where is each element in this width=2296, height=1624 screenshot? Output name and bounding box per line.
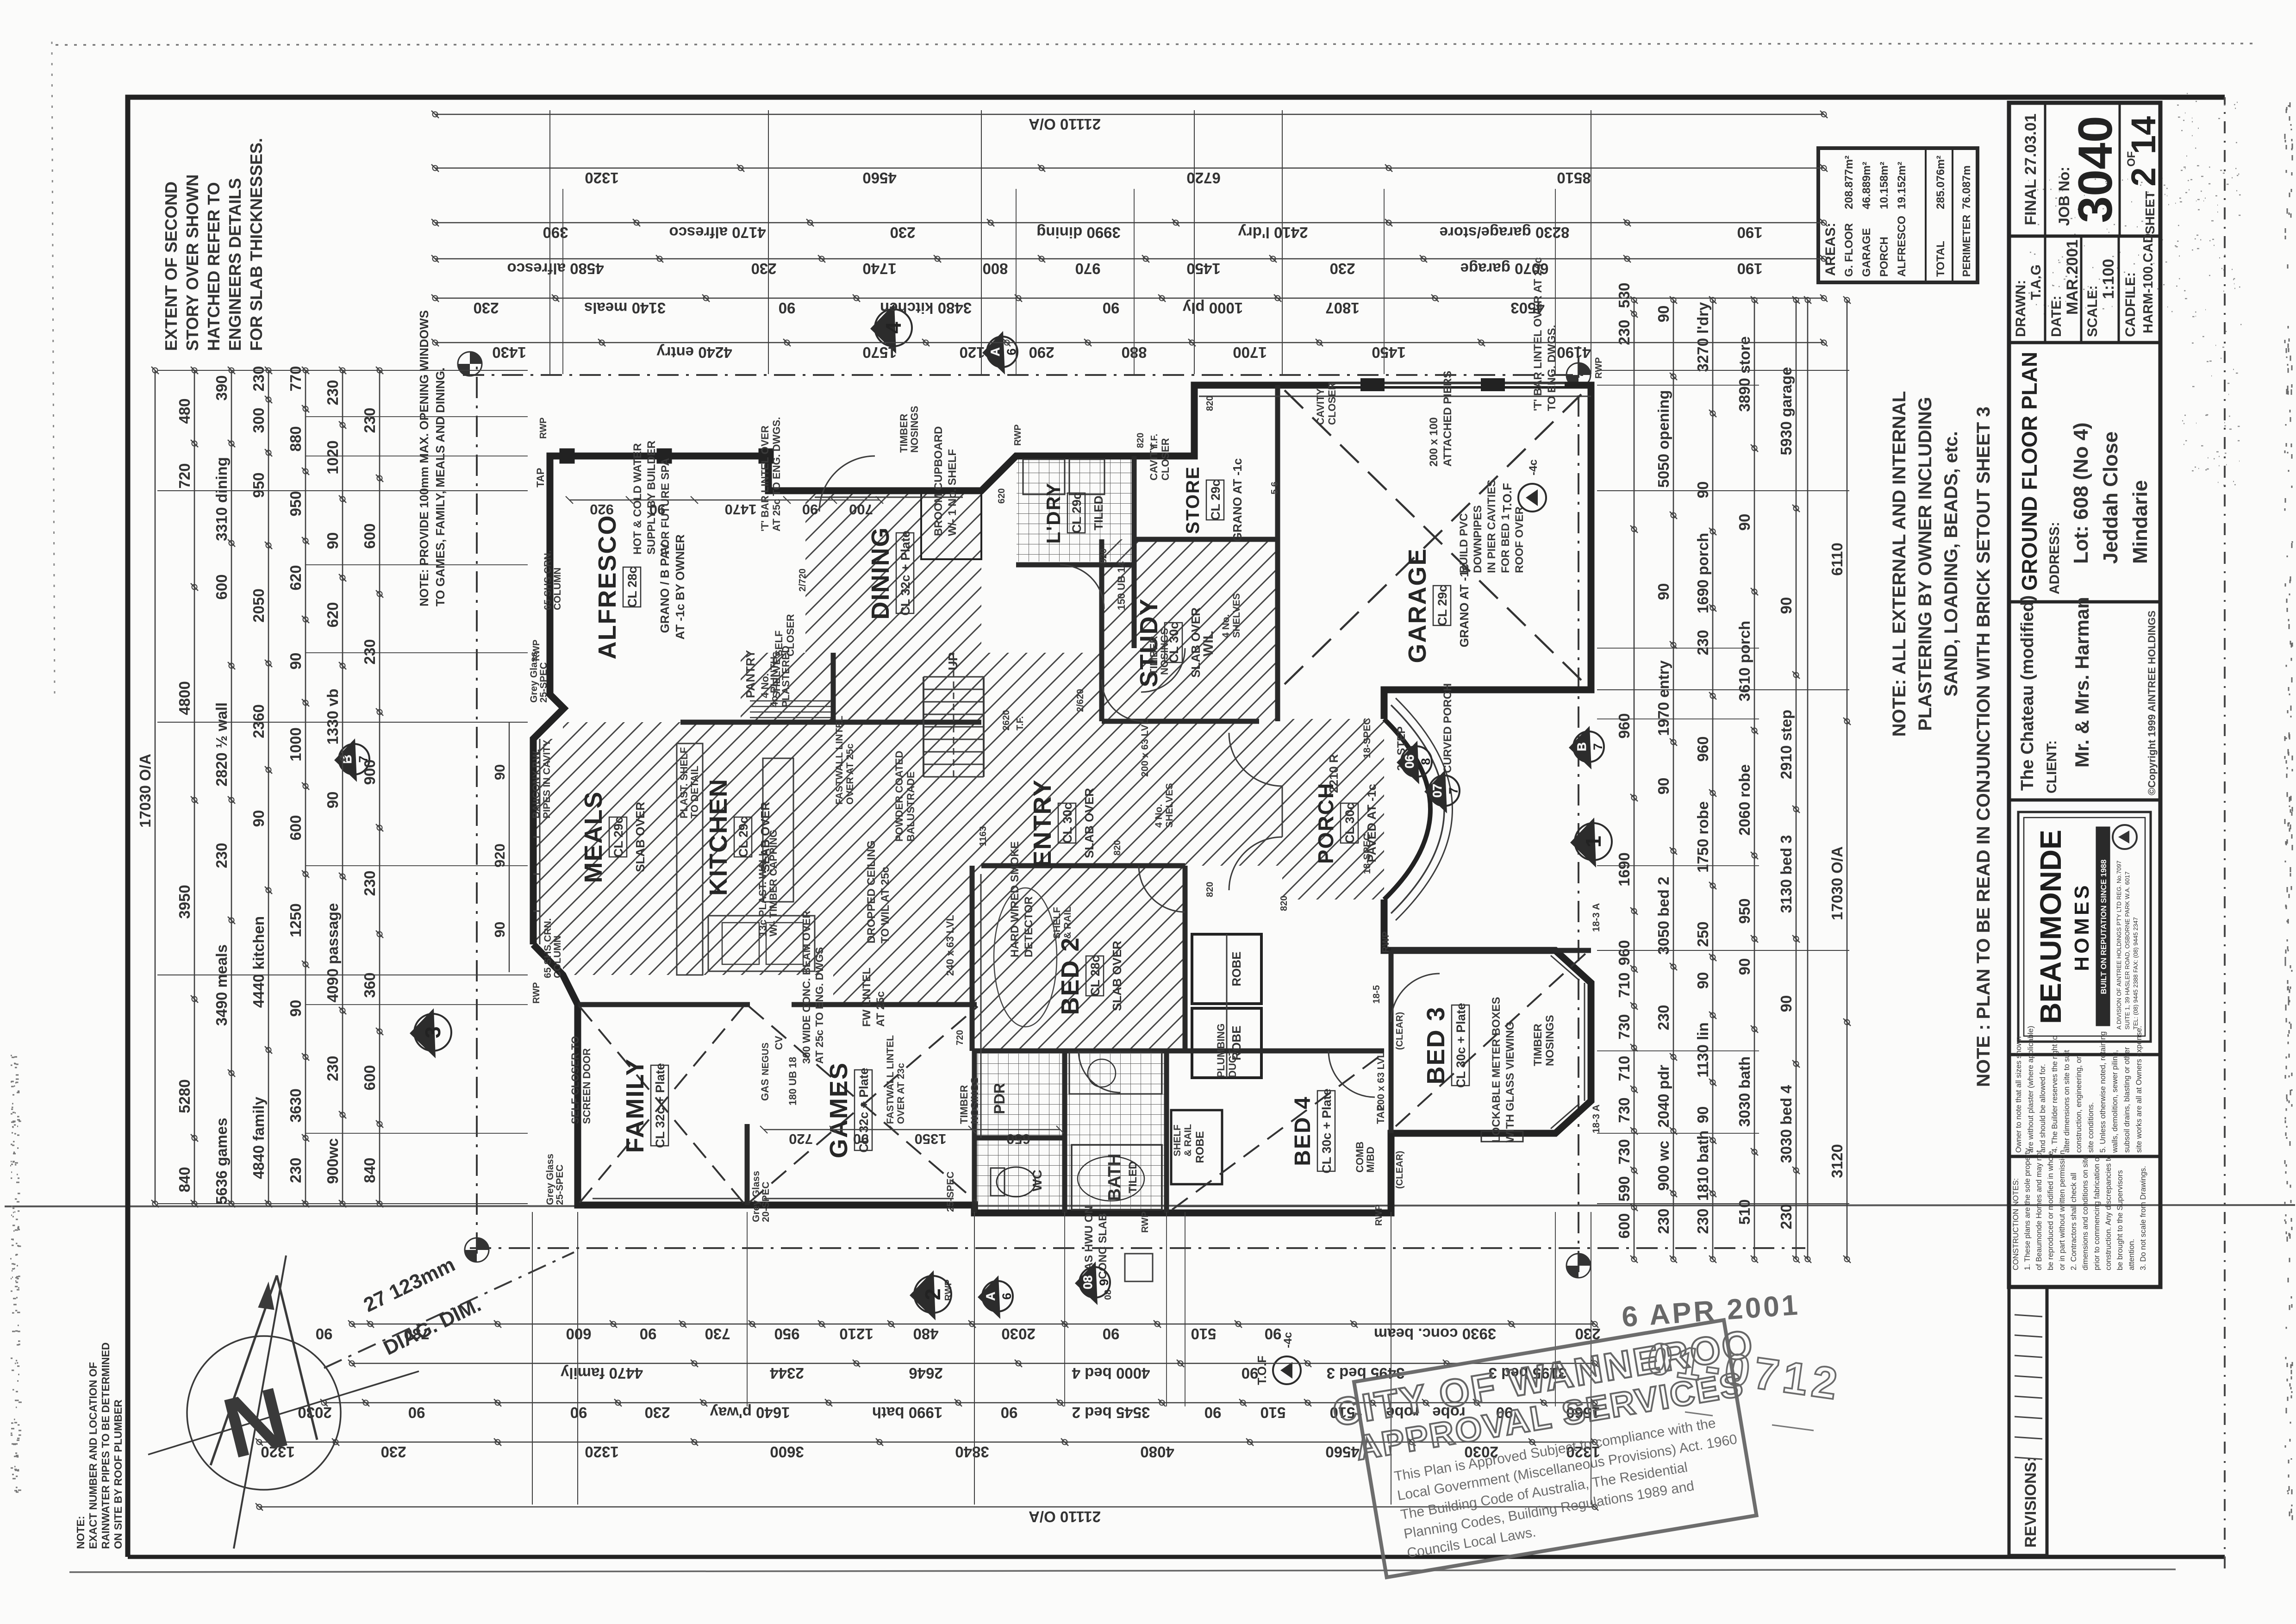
svg-text:230: 230 bbox=[1329, 260, 1355, 277]
svg-text:390: 390 bbox=[543, 224, 568, 241]
svg-text:4 No.: 4 No. bbox=[1221, 614, 1231, 638]
svg-text:2/620: 2/620 bbox=[1075, 689, 1086, 712]
svg-text:970: 970 bbox=[1075, 260, 1100, 277]
svg-text:620: 620 bbox=[324, 602, 341, 627]
svg-text:CL 29c: CL 29c bbox=[1209, 480, 1223, 520]
svg-text:90: 90 bbox=[1778, 597, 1795, 614]
svg-text:230: 230 bbox=[361, 870, 378, 896]
svg-text:NOSINGS: NOSINGS bbox=[1159, 628, 1170, 675]
svg-text:90: 90 bbox=[1694, 481, 1711, 499]
svg-text:Jeddah Close: Jeddah Close bbox=[2099, 431, 2122, 564]
svg-text:Mindarie: Mindarie bbox=[2129, 480, 2152, 564]
svg-text:700: 700 bbox=[849, 501, 873, 518]
svg-text:are without plaster (where app: are without plaster (where applicable) bbox=[2027, 1026, 2035, 1153]
svg-text:ROBE: ROBE bbox=[1229, 951, 1243, 986]
svg-text:be brought to the Supervisors: be brought to the Supervisors bbox=[2116, 1170, 2124, 1270]
svg-text:90: 90 bbox=[287, 653, 304, 670]
svg-text:TIMBER: TIMBER bbox=[898, 414, 910, 453]
svg-text:2/720: 2/720 bbox=[798, 568, 808, 592]
svg-text:3130 bed 3: 3130 bed 3 bbox=[1778, 835, 1795, 913]
svg-text:76.087m: 76.087m bbox=[1960, 165, 1973, 209]
svg-text:90: 90 bbox=[1655, 583, 1672, 600]
svg-text:CL 30c + Plate: CL 30c + Plate bbox=[1454, 1003, 1468, 1087]
svg-text:TIMBER: TIMBER bbox=[1148, 636, 1160, 675]
svg-text:200 x 63 LVL: 200 x 63 LVL bbox=[1140, 718, 1150, 777]
svg-text:8: 8 bbox=[1419, 758, 1433, 765]
svg-text:BALUSTRADE: BALUSTRADE bbox=[905, 771, 917, 842]
svg-text:5930 garage: 5930 garage bbox=[1778, 367, 1795, 456]
svg-text:230: 230 bbox=[250, 366, 267, 391]
svg-text:MEALS: MEALS bbox=[580, 791, 607, 883]
svg-text:230: 230 bbox=[890, 224, 915, 241]
svg-text:and should be allowed for.: and should be allowed for. bbox=[2039, 1064, 2047, 1153]
svg-text:CLOSER: CLOSER bbox=[1326, 382, 1338, 425]
svg-text:46.889m²: 46.889m² bbox=[1860, 162, 1873, 209]
svg-text:CL 28c: CL 28c bbox=[625, 567, 639, 607]
svg-text:18-SPEC: 18-SPEC bbox=[1362, 718, 1373, 758]
svg-text:07: 07 bbox=[1430, 784, 1444, 798]
svg-text:NOTE: PROVIDE 100mm MAX. OPENI: NOTE: PROVIDE 100mm MAX. OPENING WINDOWS bbox=[417, 310, 431, 606]
svg-text:3040: 3040 bbox=[2069, 116, 2122, 223]
svg-text:1570: 1570 bbox=[862, 344, 896, 361]
svg-text:RAINWATER PIPES TO BE DETERMIN: RAINWATER PIPES TO BE DETERMINED bbox=[100, 1343, 112, 1549]
svg-text:WC: WC bbox=[1030, 1170, 1044, 1192]
svg-text:2060 robe: 2060 robe bbox=[1736, 764, 1753, 836]
svg-text:SHEET: SHEET bbox=[2143, 191, 2157, 234]
svg-text:710: 710 bbox=[1616, 972, 1633, 998]
svg-text:2910 step: 2910 step bbox=[1778, 710, 1795, 779]
svg-text:PERIMETER: PERIMETER bbox=[1960, 214, 1972, 277]
svg-text:AT -1c BY OWNER: AT -1c BY OWNER bbox=[673, 534, 687, 640]
svg-text:1740: 1740 bbox=[862, 260, 896, 277]
svg-text:18-3 A: 18-3 A bbox=[1591, 903, 1602, 932]
svg-text:CL 29c: CL 29c bbox=[611, 817, 625, 857]
svg-text:DATE:: DATE: bbox=[2049, 296, 2064, 337]
svg-text:25-SPEC: 25-SPEC bbox=[538, 662, 549, 703]
svg-text:13c PLAST. WALL: 13c PLAST. WALL bbox=[757, 850, 768, 937]
svg-text:CONSTRUCTION NOTES:: CONSTRUCTION NOTES: bbox=[2012, 1178, 2020, 1270]
svg-text:6: 6 bbox=[1000, 1293, 1014, 1299]
svg-text:250: 250 bbox=[1694, 921, 1711, 947]
svg-text:600: 600 bbox=[287, 815, 304, 840]
svg-text:PLASTERED: PLASTERED bbox=[780, 646, 792, 707]
svg-text:'T' BAR LINTEL OVER: 'T' BAR LINTEL OVER bbox=[759, 425, 771, 531]
svg-text:18-5: 18-5 bbox=[1372, 985, 1382, 1004]
svg-text:90: 90 bbox=[1001, 1404, 1018, 1421]
svg-text:208.877m²: 208.877m² bbox=[1843, 156, 1855, 209]
svg-text:ENTRY: ENTRY bbox=[1029, 779, 1056, 867]
svg-text:SLAB OVER: SLAB OVER bbox=[1082, 788, 1096, 858]
svg-text:AT 25c TO ENG. DWGS: AT 25c TO ENG. DWGS bbox=[813, 947, 825, 1064]
svg-text:NOTE: ALL EXTERNAL AND INTERNA: NOTE: ALL EXTERNAL AND INTERNAL bbox=[1889, 391, 1909, 737]
svg-text:BROOM CUPBOARD: BROOM CUPBOARD bbox=[932, 426, 945, 536]
svg-text:6720: 6720 bbox=[1186, 169, 1220, 187]
svg-text:-4c: -4c bbox=[1527, 459, 1540, 475]
svg-text:construction, engineering, or: construction, engineering, or bbox=[2075, 1056, 2083, 1153]
svg-text:230: 230 bbox=[1694, 630, 1711, 655]
svg-text:AREAS:: AREAS: bbox=[1823, 223, 1838, 276]
svg-text:230: 230 bbox=[1655, 1005, 1672, 1030]
svg-text:GARAGE: GARAGE bbox=[1404, 548, 1431, 663]
svg-text:90: 90 bbox=[570, 1404, 587, 1421]
svg-text:1450: 1450 bbox=[1186, 260, 1220, 277]
svg-text:SCREEN DOOR: SCREEN DOOR bbox=[581, 1048, 593, 1124]
svg-text:SHELF: SHELF bbox=[1172, 1124, 1183, 1156]
svg-text:230: 230 bbox=[324, 1056, 341, 1081]
svg-text:14: 14 bbox=[2124, 116, 2163, 154]
svg-text:300 WIDE CONC. BEAM OVER: 300 WIDE CONC. BEAM OVER bbox=[800, 911, 812, 1064]
svg-text:'T' BAR LINTEL OVER AT 24c: 'T' BAR LINTEL OVER AT 24c bbox=[1532, 257, 1544, 411]
svg-text:7: 7 bbox=[1447, 787, 1460, 794]
svg-text:90: 90 bbox=[1694, 972, 1711, 989]
svg-text:BATH: BATH bbox=[1105, 1154, 1124, 1201]
svg-text:900 wc: 900 wc bbox=[1655, 1141, 1672, 1191]
svg-text:1690 porch: 1690 porch bbox=[1694, 533, 1711, 613]
svg-text:CADFILE:: CADFILE: bbox=[2123, 272, 2138, 337]
svg-text:25-SPEC: 25-SPEC bbox=[945, 1171, 956, 1212]
svg-text:4090 passage: 4090 passage bbox=[324, 903, 341, 1003]
svg-text:90: 90 bbox=[640, 1325, 657, 1343]
svg-text:©Copyright 1999 AINTREE HOLDIN: ©Copyright 1999 AINTREE HOLDINGS bbox=[2146, 611, 2158, 795]
svg-text:(CLEAR): (CLEAR) bbox=[1395, 1012, 1405, 1050]
svg-text:2620: 2620 bbox=[1001, 710, 1011, 731]
svg-text:200 x 63 LVL: 200 x 63 LVL bbox=[1376, 1052, 1386, 1110]
svg-text:Grey Glass: Grey Glass bbox=[751, 1171, 761, 1222]
svg-text:BED 4: BED 4 bbox=[1291, 1096, 1315, 1166]
svg-text:1640 p'way: 1640 p'way bbox=[710, 1404, 790, 1421]
svg-text:CL 32c + Plate: CL 32c + Plate bbox=[653, 1063, 667, 1148]
svg-text:FOR SLAB THICKNESSES.: FOR SLAB THICKNESSES. bbox=[247, 138, 266, 351]
svg-text:attention.: attention. bbox=[2128, 1239, 2136, 1270]
svg-text:TILED: TILED bbox=[1092, 495, 1105, 530]
svg-text:HOT & COLD WATER: HOT & COLD WATER bbox=[631, 443, 644, 555]
svg-text:530: 530 bbox=[1616, 282, 1633, 308]
svg-text:MAR.2001: MAR.2001 bbox=[2064, 239, 2081, 315]
svg-text:NOTE:: NOTE: bbox=[75, 1516, 87, 1549]
svg-text:HOMES: HOMES bbox=[2071, 882, 2093, 971]
svg-text:820: 820 bbox=[1279, 896, 1289, 911]
svg-text:A: A bbox=[988, 347, 1002, 356]
svg-text:DINING: DINING bbox=[867, 527, 894, 620]
svg-text:3050 bed 2: 3050 bed 2 bbox=[1655, 877, 1672, 955]
svg-text:3950: 3950 bbox=[176, 885, 193, 918]
svg-text:90: 90 bbox=[492, 922, 508, 937]
svg-text:230: 230 bbox=[287, 1157, 304, 1183]
svg-text:90: 90 bbox=[1204, 1404, 1222, 1421]
svg-text:720: 720 bbox=[955, 1030, 965, 1045]
svg-text:300: 300 bbox=[250, 407, 267, 433]
svg-text:4 No.: 4 No. bbox=[1154, 804, 1164, 828]
svg-text:CL 30c + Plate: CL 30c + Plate bbox=[1320, 1088, 1334, 1173]
svg-text:10.158m²: 10.158m² bbox=[1878, 162, 1890, 209]
svg-text:820: 820 bbox=[1205, 396, 1215, 411]
svg-text:230: 230 bbox=[361, 639, 378, 664]
svg-text:4080: 4080 bbox=[1140, 1443, 1174, 1461]
svg-text:ROOF OVER: ROOF OVER bbox=[1513, 506, 1526, 573]
svg-text:20-SPEC: 20-SPEC bbox=[761, 1181, 771, 1222]
svg-text:3610 porch: 3610 porch bbox=[1736, 621, 1753, 701]
svg-text:5. Unless otherwise noted, ret: 5. Unless otherwise noted, retaining bbox=[2099, 1031, 2107, 1153]
svg-text:600: 600 bbox=[566, 1325, 591, 1343]
svg-text:alter dimensions on site to su: alter dimensions on site to suit bbox=[2063, 1050, 2071, 1153]
svg-text:GAMES: GAMES bbox=[825, 1062, 853, 1158]
svg-text:230: 230 bbox=[381, 1443, 406, 1461]
svg-text:4170 alfresco: 4170 alfresco bbox=[669, 224, 766, 241]
svg-text:SUITE 1, 39 HASLER ROAD, OSB: SUITE 1, 39 HASLER ROAD, OSBORNE PARK W.… bbox=[2124, 872, 2131, 1030]
svg-text:600: 600 bbox=[361, 1065, 378, 1090]
svg-text:90: 90 bbox=[1103, 300, 1120, 317]
svg-text:2040 pdr: 2040 pdr bbox=[1655, 1065, 1672, 1128]
svg-text:EXACT NUMBER AND LOCATION OF: EXACT NUMBER AND LOCATION OF bbox=[87, 1362, 99, 1549]
svg-text:1020: 1020 bbox=[324, 440, 341, 474]
svg-text:PORCH: PORCH bbox=[1878, 237, 1890, 277]
svg-text:230: 230 bbox=[473, 300, 499, 317]
svg-text:2646: 2646 bbox=[909, 1365, 942, 1382]
svg-text:820: 820 bbox=[1112, 840, 1123, 856]
svg-text:FW LINTEL: FW LINTEL bbox=[861, 968, 873, 1027]
svg-text:3270 l'dry: 3270 l'dry bbox=[1694, 302, 1711, 372]
svg-text:90: 90 bbox=[1736, 514, 1753, 531]
svg-text:Owner to note that all sizes s: Owner to note that all sizes shown bbox=[2015, 1037, 2023, 1153]
svg-text:RWP: RWP bbox=[1381, 931, 1391, 953]
svg-text:POWDER COATED: POWDER COATED bbox=[893, 751, 905, 842]
svg-text:ENGINEERS DETAILS: ENGINEERS DETAILS bbox=[225, 178, 244, 351]
svg-text:subsoil drains, blasting or ot: subsoil drains, blasting or other bbox=[2123, 1047, 2131, 1153]
svg-text:& RAIL: & RAIL bbox=[1183, 1124, 1193, 1156]
svg-text:DUCT: DUCT bbox=[1227, 1049, 1238, 1078]
svg-text:PORCH: PORCH bbox=[1314, 782, 1338, 864]
svg-text:TO WIL AT 25c: TO WIL AT 25c bbox=[879, 867, 892, 943]
svg-text:NOSINGS: NOSINGS bbox=[1544, 1015, 1556, 1066]
svg-text:CL 29c: CL 29c bbox=[1435, 585, 1449, 626]
svg-text:Mr. & Mrs. Harman: Mr. & Mrs. Harman bbox=[2071, 597, 2093, 768]
svg-text:1130 lin: 1130 lin bbox=[1694, 1022, 1711, 1077]
svg-text:3890 store: 3890 store bbox=[1736, 336, 1753, 412]
svg-text:510: 510 bbox=[1736, 1199, 1753, 1224]
svg-text:950: 950 bbox=[250, 472, 267, 498]
svg-text:TO ENG. DWGS.: TO ENG. DWGS. bbox=[1546, 325, 1558, 411]
svg-text:920: 920 bbox=[492, 843, 508, 868]
svg-text:190: 190 bbox=[1737, 224, 1762, 241]
svg-text:TIMBER: TIMBER bbox=[958, 1085, 970, 1124]
svg-text:M/BD: M/BD bbox=[1365, 1147, 1376, 1173]
svg-text:18-SPEC: 18-SPEC bbox=[1362, 833, 1373, 874]
svg-text:SELF CLOSER TO: SELF CLOSER TO bbox=[569, 1036, 581, 1124]
svg-text:820: 820 bbox=[1136, 433, 1146, 448]
svg-text:5636 games: 5636 games bbox=[213, 1118, 230, 1204]
svg-text:3630: 3630 bbox=[287, 1088, 304, 1122]
svg-text:CL 32c + Plate: CL 32c + Plate bbox=[898, 531, 912, 615]
svg-text:9: 9 bbox=[1097, 1279, 1111, 1286]
svg-text:510: 510 bbox=[1191, 1325, 1216, 1343]
svg-text:4000 bed 4: 4000 bed 4 bbox=[1072, 1365, 1150, 1382]
svg-text:2030: 2030 bbox=[1001, 1325, 1035, 1343]
svg-text:720: 720 bbox=[176, 463, 193, 488]
svg-text:1320: 1320 bbox=[585, 1443, 618, 1461]
svg-text:COLUMN: COLUMN bbox=[552, 568, 563, 610]
svg-text:1350: 1350 bbox=[915, 1131, 947, 1147]
svg-text:4440 kitchen: 4440 kitchen bbox=[250, 916, 267, 1008]
svg-text:(CLEAR): (CLEAR) bbox=[1395, 1151, 1405, 1189]
svg-text:ON SITE BY ROOF PLUMBER: ON SITE BY ROOF PLUMBER bbox=[112, 1399, 124, 1549]
svg-text:230: 230 bbox=[751, 260, 776, 277]
svg-text:HARD WIRED SMOKE: HARD WIRED SMOKE bbox=[1009, 841, 1021, 957]
svg-text:3. Do not scale from Drawings.: 3. Do not scale from Drawings. bbox=[2139, 1166, 2147, 1270]
svg-text:FASTWALL LINTEL: FASTWALL LINTEL bbox=[834, 716, 845, 805]
svg-text:620: 620 bbox=[997, 488, 1007, 504]
svg-text:19.152m²: 19.152m² bbox=[1896, 162, 1908, 209]
svg-text:840: 840 bbox=[361, 1157, 378, 1183]
svg-text:HATCHED REFER TO: HATCHED REFER TO bbox=[204, 182, 223, 351]
svg-text:FINAL 27.03.01: FINAL 27.03.01 bbox=[2022, 113, 2040, 225]
svg-text:710: 710 bbox=[1616, 1056, 1633, 1081]
svg-text:3545 bed 2: 3545 bed 2 bbox=[1072, 1404, 1150, 1421]
svg-text:CL 29c: CL 29c bbox=[1070, 493, 1084, 533]
svg-text:dimensions and conditions on s: dimensions and conditions on site bbox=[2081, 1156, 2090, 1270]
svg-text:1000 ply: 1000 ply bbox=[1182, 300, 1243, 317]
svg-text:600: 600 bbox=[361, 523, 378, 549]
svg-text:DROPPED CEILING: DROPPED CEILING bbox=[865, 840, 878, 943]
svg-text:FASTWALL LINTEL: FASTWALL LINTEL bbox=[885, 1035, 896, 1124]
svg-text:6070 garage: 6070 garage bbox=[1460, 260, 1549, 277]
svg-text:T.F.: T.F. bbox=[1015, 716, 1025, 731]
svg-text:BUILT ON REPUTATION SINCE: BUILT ON REPUTATION SINCE 1988 bbox=[2099, 860, 2108, 994]
svg-text:A: A bbox=[984, 1292, 998, 1301]
svg-text:3030 bath: 3030 bath bbox=[1736, 1056, 1753, 1127]
svg-text:1:100: 1:100 bbox=[2100, 259, 2117, 299]
svg-text:920: 920 bbox=[590, 501, 614, 518]
svg-text:800: 800 bbox=[982, 260, 1008, 277]
svg-text:620: 620 bbox=[287, 565, 304, 590]
svg-text:90: 90 bbox=[324, 532, 341, 550]
svg-text:18-3 A: 18-3 A bbox=[1591, 1105, 1602, 1133]
svg-text:GROUND FLOOR PLAN: GROUND FLOOR PLAN bbox=[2017, 352, 2041, 591]
svg-text:A DIVISION OF AINTREE HOLDINGS: A DIVISION OF AINTREE HOLDINGS PTY LTD R… bbox=[2115, 861, 2122, 1030]
svg-text:720: 720 bbox=[789, 1131, 813, 1147]
svg-text:NOTE : PLAN TO BE READ IN CONJ: NOTE : PLAN TO BE READ IN CONJUNCTION WI… bbox=[1973, 406, 1994, 1087]
svg-text:CLIENT:: CLIENT: bbox=[2044, 740, 2059, 793]
svg-text:230: 230 bbox=[324, 380, 341, 405]
svg-text:730: 730 bbox=[1616, 1097, 1633, 1123]
svg-text:2410 l'dry: 2410 l'dry bbox=[1238, 224, 1308, 241]
svg-text:2820 ½ wall: 2820 ½ wall bbox=[213, 702, 230, 787]
svg-text:T.F.: T.F. bbox=[1149, 434, 1160, 448]
svg-text:RWP: RWP bbox=[538, 418, 549, 439]
svg-text:ADDRESS:: ADDRESS: bbox=[2047, 522, 2062, 594]
svg-text:TAP: TAP bbox=[535, 468, 546, 487]
svg-text:HARM-100.CAD: HARM-100.CAD bbox=[2141, 233, 2156, 333]
svg-text:1990 bath: 1990 bath bbox=[872, 1404, 942, 1421]
svg-text:90: 90 bbox=[250, 810, 267, 827]
svg-text:5050 opening: 5050 opening bbox=[1655, 390, 1672, 488]
svg-text:3930 conc. beam: 3930 conc. beam bbox=[1374, 1325, 1496, 1343]
svg-text:site works are all at Owners e: site works are all at Owners expense. bbox=[2135, 1026, 2143, 1153]
svg-text:90: 90 bbox=[649, 501, 665, 518]
svg-text:230: 230 bbox=[1616, 319, 1633, 345]
svg-text:960: 960 bbox=[1616, 713, 1633, 738]
svg-text:CL 30c: CL 30c bbox=[1061, 803, 1074, 843]
svg-text:Grey Glass: Grey Glass bbox=[545, 1154, 555, 1205]
svg-text:1810 bath: 1810 bath bbox=[1694, 1131, 1711, 1201]
svg-text:DRAWN:: DRAWN: bbox=[2013, 280, 2028, 337]
svg-text:SHELVES: SHELVES bbox=[1231, 593, 1242, 638]
svg-text:2210 R: 2210 R bbox=[1327, 754, 1341, 793]
svg-text:1470: 1470 bbox=[725, 501, 757, 518]
svg-text:90: 90 bbox=[1655, 778, 1672, 795]
svg-text:3990 dining: 3990 dining bbox=[1036, 224, 1121, 241]
svg-text:4. The Builder reserves the ri: 4. The Builder reserves the right to bbox=[2051, 1036, 2059, 1153]
svg-text:3490 meals: 3490 meals bbox=[213, 944, 230, 1026]
svg-text:90: 90 bbox=[853, 1131, 869, 1147]
svg-text:3140 meals: 3140 meals bbox=[584, 300, 666, 317]
svg-text:730: 730 bbox=[1616, 1139, 1633, 1164]
svg-text:PIPES IN CAVITY: PIPES IN CAVITY bbox=[542, 740, 552, 818]
svg-text:820: 820 bbox=[1098, 549, 1109, 564]
svg-text:RWP: RWP bbox=[531, 982, 542, 1004]
svg-text:2: 2 bbox=[2124, 167, 2163, 186]
svg-text:230: 230 bbox=[1778, 1204, 1795, 1229]
svg-text:SAND, LOADING, BEADS, etc.: SAND, LOADING, BEADS, etc. bbox=[1941, 431, 1961, 696]
svg-text:90: 90 bbox=[287, 1000, 304, 1017]
svg-text:CURVED PORCH: CURVED PORCH bbox=[1441, 683, 1454, 773]
svg-text:90: 90 bbox=[492, 764, 508, 780]
svg-text:L'DRY: L'DRY bbox=[1042, 482, 1064, 544]
svg-text:3030 bed 4: 3030 bed 4 bbox=[1778, 1085, 1795, 1163]
svg-text:480: 480 bbox=[176, 398, 193, 424]
svg-text:510: 510 bbox=[1260, 1404, 1285, 1421]
svg-text:1000: 1000 bbox=[287, 727, 304, 761]
svg-text:GRANO AT -1c: GRANO AT -1c bbox=[1457, 564, 1471, 648]
svg-text:ALFRESCO: ALFRESCO bbox=[1896, 216, 1908, 277]
svg-text:1210: 1210 bbox=[839, 1325, 873, 1343]
svg-text:2050: 2050 bbox=[250, 588, 267, 622]
svg-text:3310 dining: 3310 dining bbox=[213, 457, 230, 541]
svg-text:TIMBER: TIMBER bbox=[1532, 1024, 1544, 1066]
svg-text:4190: 4190 bbox=[1557, 344, 1591, 361]
svg-text:PLAST. SHELF: PLAST. SHELF bbox=[678, 747, 690, 818]
svg-text:STORY OVER SHOWN: STORY OVER SHOWN bbox=[183, 175, 202, 351]
svg-text:285.076m²: 285.076m² bbox=[1934, 156, 1947, 209]
svg-text:ROBE: ROBE bbox=[1194, 1131, 1206, 1163]
svg-text:900: 900 bbox=[361, 759, 378, 785]
svg-text:4800: 4800 bbox=[176, 681, 193, 715]
svg-text:FOR BED 1: FOR BED 1 bbox=[1499, 514, 1512, 573]
svg-text:BUILD PVC: BUILD PVC bbox=[1458, 513, 1470, 573]
svg-text:DOWNPIPES: DOWNPIPES bbox=[1472, 505, 1484, 573]
svg-text:21110 O/A: 21110 O/A bbox=[1029, 116, 1101, 133]
svg-text:be reproduced or modified in w: be reproduced or modified in whole bbox=[2046, 1151, 2055, 1270]
svg-text:T.A.G: T.A.G bbox=[2028, 264, 2044, 300]
svg-text:65 SHS CRN.: 65 SHS CRN. bbox=[543, 918, 553, 978]
svg-text:SLAB OVER: SLAB OVER bbox=[1110, 941, 1124, 1011]
svg-text:600: 600 bbox=[213, 574, 230, 600]
svg-text:770: 770 bbox=[287, 366, 304, 391]
svg-text:The Chateau (modified): The Chateau (modified) bbox=[2018, 595, 2037, 791]
svg-text:GARAGE: GARAGE bbox=[1860, 228, 1873, 277]
svg-text:1450: 1450 bbox=[1372, 344, 1405, 361]
svg-text:3120: 3120 bbox=[1828, 1144, 1846, 1178]
svg-text:ATTACHED PIERS: ATTACHED PIERS bbox=[1441, 371, 1454, 467]
svg-text:prior to commencing fabricatio: prior to commencing fabrication or bbox=[2093, 1155, 2101, 1270]
svg-text:90: 90 bbox=[1736, 958, 1753, 975]
svg-text:1250: 1250 bbox=[287, 903, 304, 937]
svg-text:950: 950 bbox=[774, 1325, 799, 1343]
svg-text:960: 960 bbox=[1694, 736, 1711, 762]
svg-text:2. Contractors shall check all: 2. Contractors shall check all bbox=[2070, 1173, 2078, 1270]
svg-text:4580 alfresco: 4580 alfresco bbox=[507, 260, 604, 277]
svg-text:1807: 1807 bbox=[1325, 300, 1359, 317]
svg-text:230: 230 bbox=[213, 843, 230, 868]
